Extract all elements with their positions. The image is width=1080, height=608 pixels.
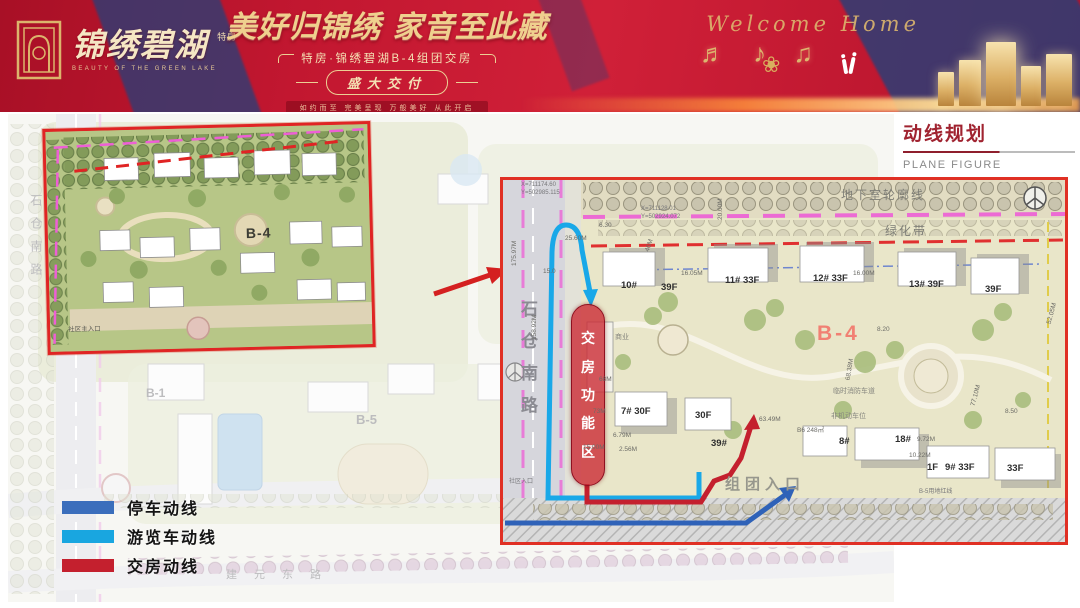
title-underline	[903, 151, 1075, 153]
dim-label: 6.30	[599, 222, 612, 229]
dim-label: 9.72M	[917, 436, 935, 443]
gate-logo-icon	[16, 20, 62, 80]
bracket-decoration	[480, 54, 496, 63]
road-label-shicang-south: 石仓南路	[28, 194, 45, 286]
parking-route-swatch	[62, 501, 114, 514]
coord-label: Y=502924.072	[641, 214, 680, 220]
dim-label: 6.79M	[613, 432, 631, 439]
dim-label: 8.20	[877, 326, 890, 333]
building-label: 39F	[661, 282, 677, 293]
legend-label: 交房动线	[127, 553, 199, 577]
community-entrance-label: 社区入口	[509, 476, 533, 485]
flower-ornament-icon: ❀	[762, 52, 780, 78]
handover-route-swatch	[62, 559, 114, 572]
handover-zone-box: 交 房 功 能 区	[571, 304, 605, 486]
banner-subtitle: 特房·锦绣碧湖B-4组团交房	[301, 50, 473, 66]
legend-item-parking: 停车动线	[62, 495, 217, 519]
dim-label: 20.00M	[717, 198, 724, 220]
dim-label: 16.00M	[853, 270, 875, 277]
dim-label: 15.00M	[583, 444, 605, 451]
bracket-decoration	[278, 54, 294, 63]
building-label: 12# 33F	[813, 273, 848, 284]
building-label: 13# 39F	[909, 279, 944, 290]
zone-label-b4: B-4	[817, 322, 860, 346]
group-entrance-label: 组团入口	[725, 473, 805, 494]
inset-b4-plan: B-4 社区主入口	[42, 121, 375, 355]
slide: 锦绣碧湖 特房 BEAUTY OF THE GREEN LAKE 美好归锦绣 家…	[0, 0, 1080, 608]
building-label: 18#	[895, 434, 911, 445]
building-label: 39F	[985, 284, 1001, 295]
commerce-label: 商业	[615, 332, 629, 342]
road-label-jianyuan-east: 建元东路	[226, 566, 338, 582]
tour-route-swatch	[62, 530, 114, 543]
dim-label: 16.05M	[681, 270, 703, 277]
brand-name: 锦绣碧湖	[72, 28, 217, 63]
section-title-block: 动线规划 PLANE FIGURE	[903, 119, 1075, 171]
building-label: 9# 33F	[945, 462, 975, 473]
fire-lane-label: 临时消防车道	[833, 386, 875, 396]
brand-name-en: BEAUTY OF THE GREEN LAKE	[72, 66, 217, 72]
dim-label: 63.49M	[759, 416, 781, 423]
dim-label: 2.56M	[619, 446, 637, 453]
zone-label-b1: B-1	[146, 386, 165, 400]
welcome-home-script: Welcome Home	[706, 12, 920, 36]
coord-label: Y=502985.115	[521, 190, 560, 196]
inset-entrance-label: 社区主入口	[68, 323, 101, 334]
banner-headline: 美好归锦绣 家音至此藏	[222, 10, 552, 46]
building-label: 7# 30F	[621, 406, 651, 417]
dim-label: B6 248㎡	[797, 424, 824, 434]
inset-zone-label: B-4	[246, 224, 272, 241]
building-label: 33F	[1007, 463, 1023, 474]
non-motor-label: 非机动车位	[831, 411, 866, 421]
building-label: 30F	[695, 410, 711, 421]
dim-label: 15.0	[543, 268, 556, 275]
dim-label: 158.92M	[531, 315, 538, 340]
building-label: 10#	[621, 280, 637, 291]
handover-char: 交	[581, 331, 595, 345]
section-subtitle: PLANE FIGURE	[903, 159, 1075, 171]
badge-dash	[456, 82, 478, 83]
coord-label: X=711174.60	[521, 182, 556, 188]
compass-icon	[1024, 187, 1046, 209]
building-label: 11# 33F	[725, 275, 759, 286]
handover-char: 能	[581, 416, 595, 430]
legend-label: 游览车动线	[127, 524, 217, 548]
banner-tagline: 如约而至 完美呈现 万般美好 从此开启	[286, 101, 489, 112]
dim-label: 175.97M	[511, 241, 518, 266]
b5-boundary-label: B-5用地红线	[919, 486, 952, 495]
dancers-silhouette	[838, 48, 860, 74]
dim-label: 68M	[599, 376, 612, 383]
handover-char: 房	[581, 360, 595, 374]
detail-circulation-map: 交 房 功 能 区 石仓南路 地下室轮廓线 绿化带 B-4 临时消防车道 非机动…	[500, 177, 1068, 545]
green-belt-label: 绿化带	[885, 222, 927, 239]
building-label: 8#	[839, 436, 850, 447]
building-label: 1F	[927, 462, 938, 473]
section-title: 动线规划	[903, 119, 1075, 146]
badge-dash	[296, 82, 318, 83]
route-legend: 停车动线 游览车动线 交房动线	[62, 495, 217, 582]
header-banner: 锦绣碧湖 特房 BEAUTY OF THE GREEN LAKE 美好归锦绣 家…	[0, 0, 1080, 112]
dim-label: 8.50	[1005, 408, 1018, 415]
inset-map-art	[45, 124, 372, 352]
legend-item-tour: 游览车动线	[62, 524, 217, 548]
building-label: 39#	[711, 438, 727, 449]
basement-outline-label: 地下室轮廓线	[841, 186, 925, 203]
zone-label-b5: B-5	[356, 412, 377, 427]
city-skyline	[938, 42, 1072, 106]
banner-center: 美好归锦绣 家音至此藏 特房·锦绣碧湖B-4组团交房 盛大交付 如约而至 完美呈…	[222, 10, 552, 112]
handover-char: 功	[581, 388, 595, 402]
delivery-badge: 盛大交付	[326, 70, 448, 95]
legend-item-handover: 交房动线	[62, 553, 217, 577]
dim-label: 25.60M	[565, 235, 587, 242]
coord-label: X=711128.01	[641, 206, 676, 212]
legend-label: 停车动线	[127, 495, 199, 519]
brand-logo: 锦绣碧湖 特房 BEAUTY OF THE GREEN LAKE	[16, 20, 217, 80]
dim-label: 10.22M	[909, 452, 931, 459]
dim-label: 73M	[593, 408, 606, 415]
